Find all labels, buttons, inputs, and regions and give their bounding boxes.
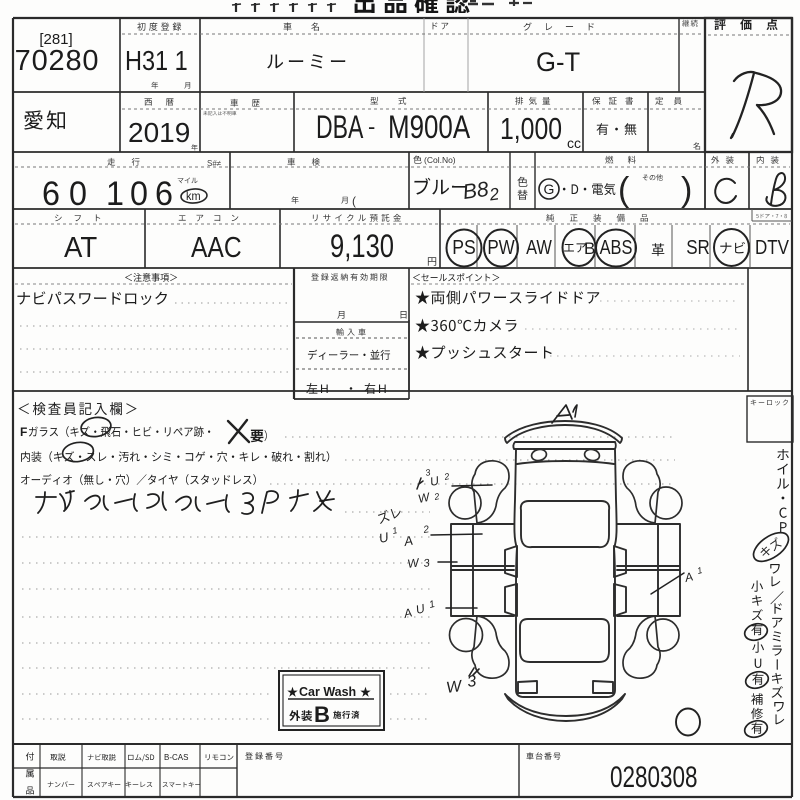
svg-text:M900A: M900A xyxy=(388,111,471,146)
svg-text:U: U xyxy=(414,601,426,617)
svg-text:U: U xyxy=(429,473,441,489)
svg-text:2: 2 xyxy=(422,524,431,536)
svg-text:PW: PW xyxy=(487,236,515,259)
svg-text:G-T: G-T xyxy=(536,46,580,77)
svg-text:H31 1: H31 1 xyxy=(125,46,188,76)
svg-text:3: 3 xyxy=(466,673,477,691)
svg-text:S#≠: S#≠ xyxy=(207,159,222,168)
svg-text:2: 2 xyxy=(432,491,440,502)
svg-text:F: F xyxy=(20,425,27,439)
svg-text:B: B xyxy=(314,702,330,727)
svg-text:km: km xyxy=(186,191,201,203)
svg-text:W: W xyxy=(417,490,433,506)
svg-text:1: 1 xyxy=(391,525,398,536)
svg-text:-: - xyxy=(368,114,375,139)
svg-text:Car Wash: Car Wash xyxy=(299,685,356,699)
svg-text:2019: 2019 xyxy=(128,117,190,148)
svg-text:1: 1 xyxy=(106,175,124,213)
svg-text:B8: B8 xyxy=(461,178,490,204)
svg-text:0: 0 xyxy=(69,175,87,213)
svg-text:H: H xyxy=(378,382,387,396)
svg-text:A: A xyxy=(682,569,694,585)
svg-text:(: ( xyxy=(352,194,356,208)
svg-text:DTV: DTV xyxy=(755,236,790,259)
svg-text:AAC: AAC xyxy=(191,231,242,263)
svg-text:(: ( xyxy=(618,171,630,209)
svg-text:0280308: 0280308 xyxy=(610,760,698,794)
svg-text:W: W xyxy=(406,555,421,571)
svg-text:2: 2 xyxy=(442,471,450,482)
svg-text:3: 3 xyxy=(423,557,432,570)
svg-text:U: U xyxy=(378,529,391,546)
svg-text:PS: PS xyxy=(452,236,475,258)
svg-text:cc: cc xyxy=(567,135,581,151)
svg-text:(Col.No): (Col.No) xyxy=(424,155,456,165)
svg-text:A: A xyxy=(402,533,414,549)
svg-text:2: 2 xyxy=(487,184,501,204)
svg-text:AT: AT xyxy=(64,230,97,263)
svg-text:6: 6 xyxy=(155,175,173,213)
svg-text:ABS: ABS xyxy=(600,235,633,258)
svg-text:A: A xyxy=(401,605,413,621)
svg-text:AW: AW xyxy=(526,235,552,258)
svg-text:1: 1 xyxy=(428,599,436,611)
svg-text:0: 0 xyxy=(130,175,148,213)
svg-text:DBA: DBA xyxy=(316,109,364,145)
svg-text:70280: 70280 xyxy=(15,45,100,77)
svg-text:W: W xyxy=(445,678,464,697)
svg-text:1: 1 xyxy=(696,565,703,576)
svg-text:SR: SR xyxy=(686,236,710,259)
svg-text:): ) xyxy=(681,171,692,209)
svg-text:B-CAS: B-CAS xyxy=(164,753,188,762)
svg-text:6: 6 xyxy=(42,175,60,213)
svg-text:H: H xyxy=(320,382,329,396)
svg-text:9,130: 9,130 xyxy=(330,229,394,264)
svg-text:1,000: 1,000 xyxy=(500,111,562,145)
svg-text:G: G xyxy=(544,181,555,197)
